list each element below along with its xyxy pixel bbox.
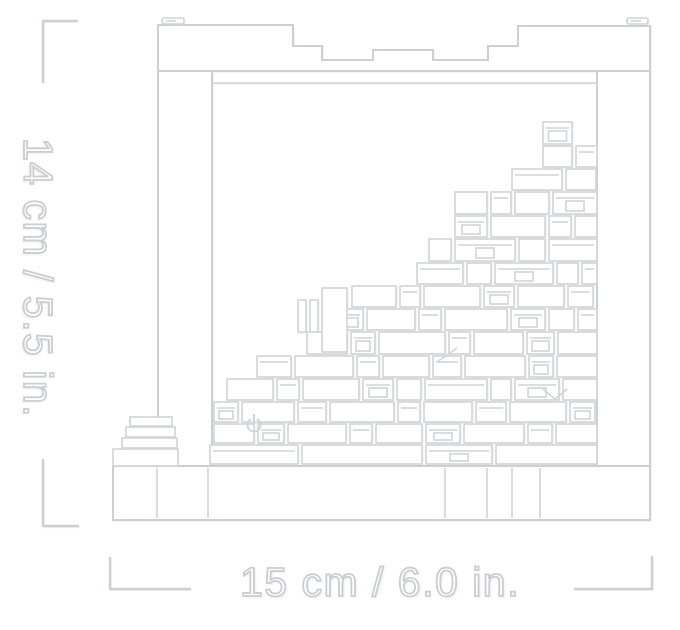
building-block [357,356,379,377]
building-block [445,309,507,330]
building-block [491,192,511,214]
building-detail [122,438,177,448]
building-block [425,379,487,400]
block-window [519,318,537,327]
block-window [462,225,480,234]
building-block [330,402,394,422]
building-detail [310,300,318,332]
building-block [568,286,593,307]
building-block [496,445,597,464]
dimension-bracket [43,460,78,526]
building-block [464,424,524,443]
building-block [257,356,291,377]
block-window [263,433,279,440]
building-block [528,424,552,443]
block-window [575,411,590,419]
block-window [549,131,567,141]
baseplate-right-wall [597,71,650,520]
building-block [350,424,372,443]
building-block [510,402,566,422]
block-window [434,433,452,440]
building-block [491,216,545,237]
building-block [210,445,298,464]
building-block [512,169,562,190]
building-block [549,216,571,237]
building-block [543,146,572,167]
building-block [549,239,597,261]
building-block [519,239,545,261]
building-block [398,402,420,422]
building-block [575,216,597,237]
building-block [476,402,506,422]
building-block [576,146,597,167]
dimension-bracket [43,21,77,82]
building-block [566,169,596,190]
building-block [474,332,523,354]
building-block [465,356,525,377]
building-detail [126,427,175,437]
block-window [532,341,549,351]
building-detail [322,288,347,352]
block-window [515,272,533,281]
building-block [302,445,422,464]
block-window [476,248,494,258]
building-block [295,356,353,377]
block-window [490,295,508,304]
block-window [534,365,548,374]
block-window [219,411,233,419]
building-block [298,402,326,422]
building-block [433,356,461,377]
width-dimension-label: 15 cm / 6.0 in. [210,559,550,605]
building-block [429,239,451,261]
model-line-art [0,0,680,630]
dimension-bracket [110,558,190,589]
building-block [518,286,564,307]
baseplate-top-wall [158,25,650,71]
building-block [557,356,597,377]
building-block [227,379,273,400]
baseplate-base [113,466,650,520]
building-detail [298,300,306,332]
building-detail [113,449,178,466]
building-block [558,332,597,354]
building-block [455,192,487,214]
block-window [369,388,387,397]
block-window [566,201,584,211]
building-block [352,286,396,307]
building-block [563,379,597,400]
building-block [277,379,299,400]
building-block [578,309,597,330]
product-dimensions-diagram: 14 cm / 5.5 in. 15 cm / 6.0 in. [0,0,680,630]
height-dimension-label: 14 cm / 5.5 in. [15,108,61,448]
block-window [356,341,370,351]
building-block [379,332,445,354]
baseplate-left-wall [158,71,212,466]
building-block [491,379,511,400]
building-block [557,263,578,284]
building-block [303,379,359,400]
building-block [556,424,597,443]
building-block [419,309,441,330]
block-window [450,454,468,461]
building-block [397,379,421,400]
building-block [417,263,463,284]
building-block [288,424,346,443]
building-block [549,309,574,330]
dimension-bracket [575,557,652,589]
building-block [383,356,429,377]
building-block [582,263,597,284]
building-block [515,192,549,214]
building-block [424,286,480,307]
building-block [424,402,472,422]
building-block [400,286,420,307]
building-detail [130,417,172,426]
building-block [376,424,422,443]
building-block [467,263,491,284]
building-block [367,309,415,330]
